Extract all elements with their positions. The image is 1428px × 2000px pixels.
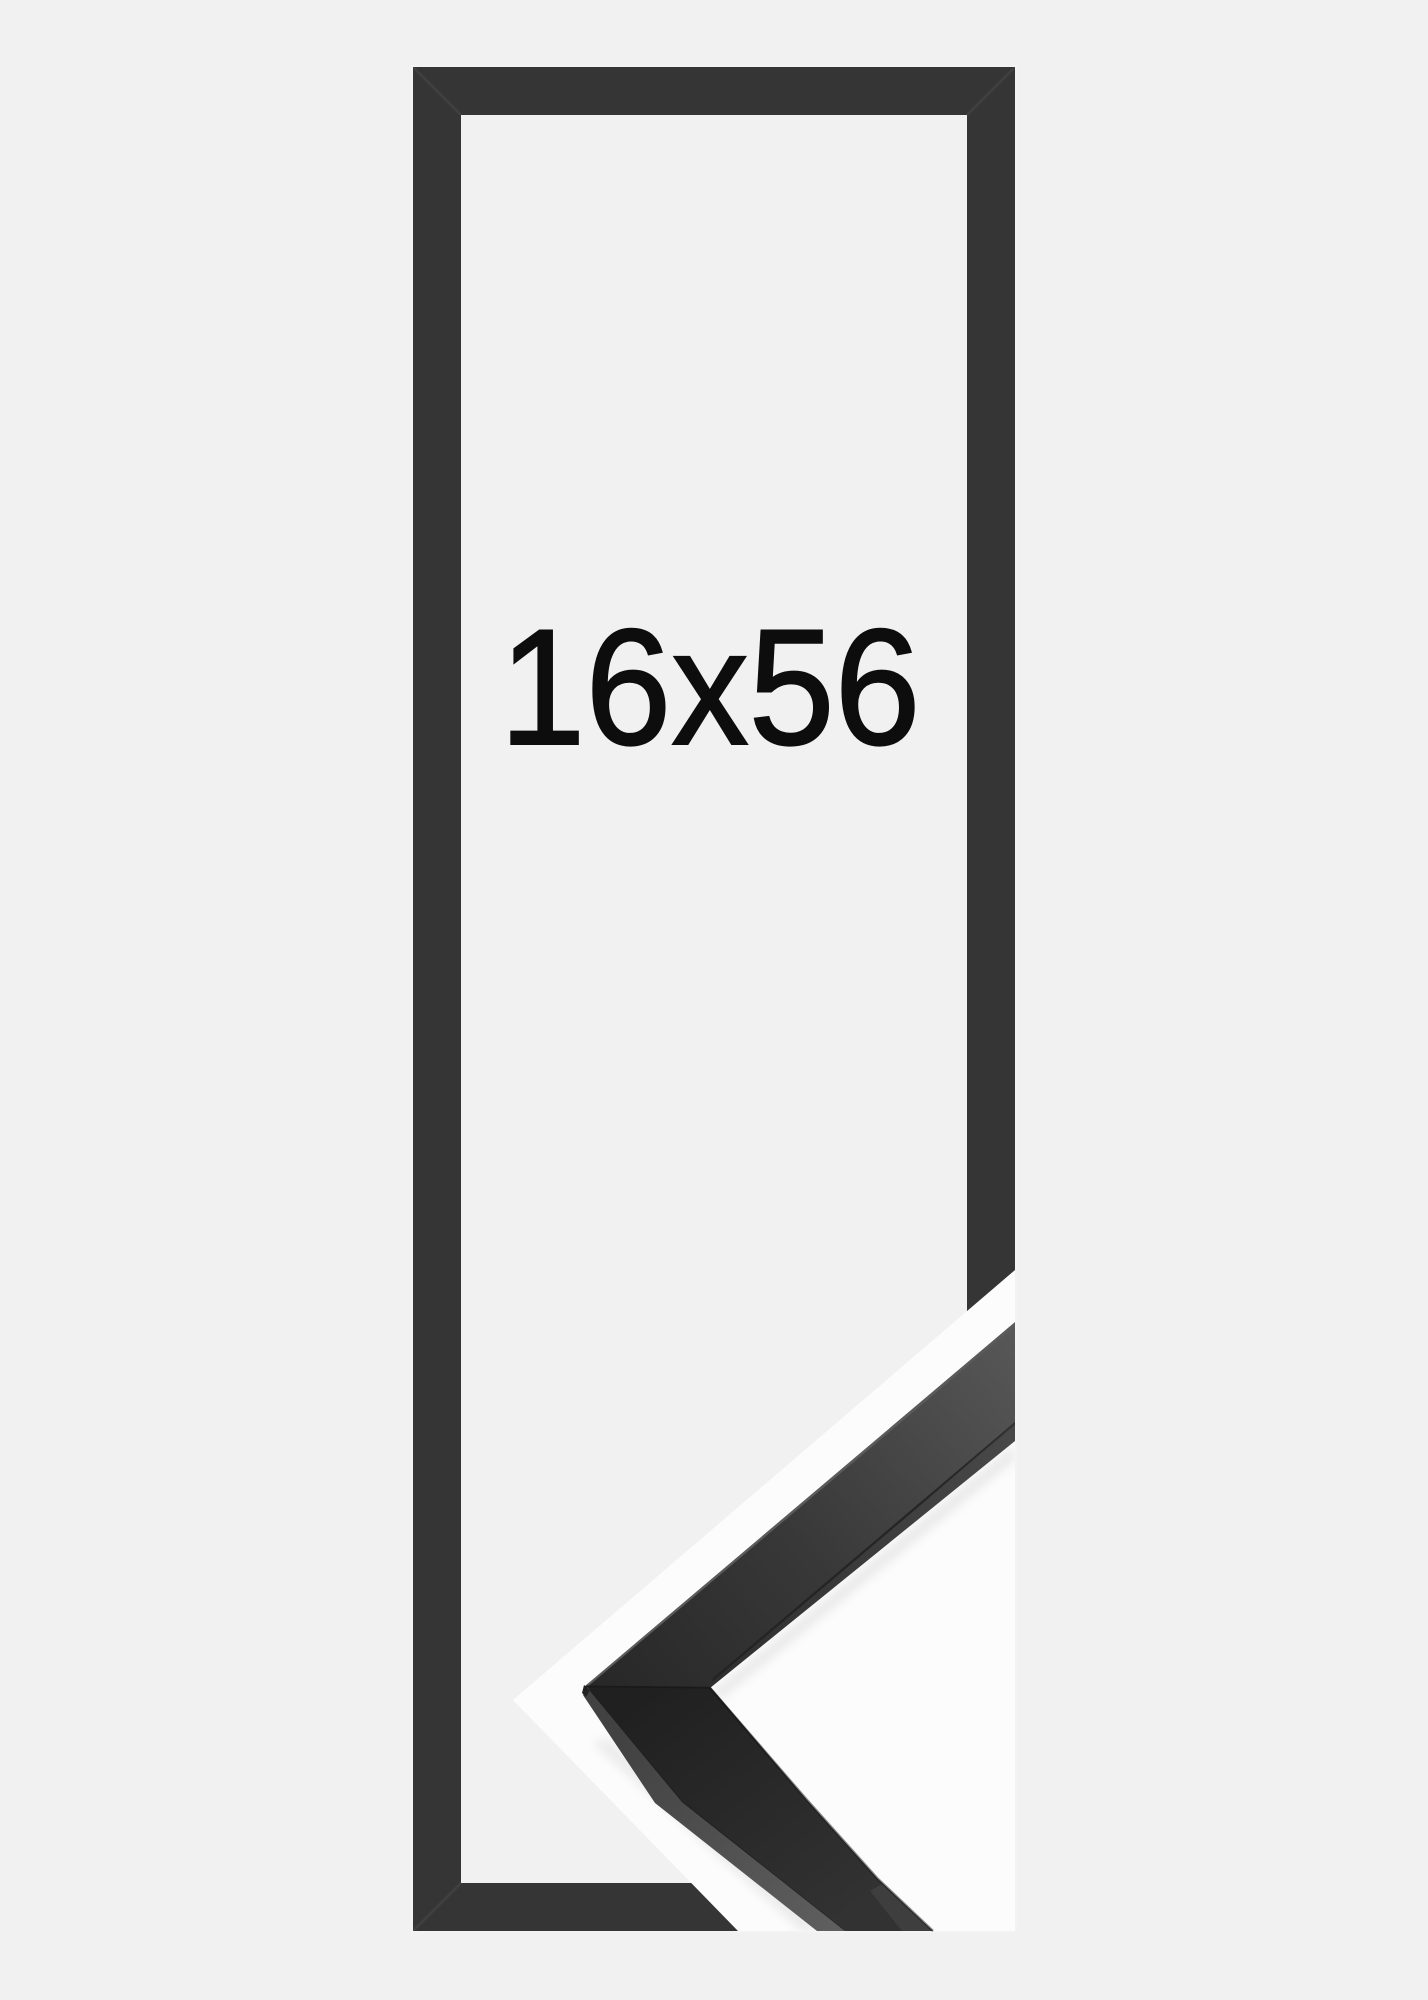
svg-text:16x56: 16x56 [500, 595, 921, 779]
